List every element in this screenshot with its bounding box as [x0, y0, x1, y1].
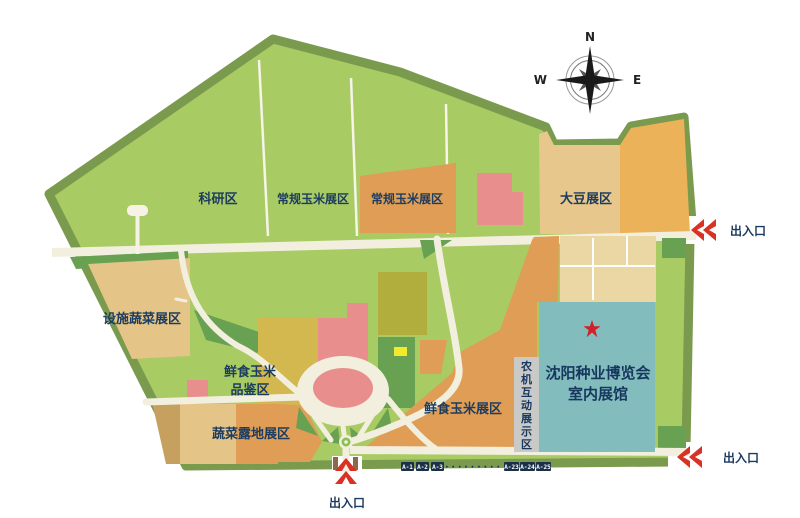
area-soybean-east-plot — [620, 119, 690, 234]
gridded-tan-plots — [560, 236, 656, 302]
indoor-hall-title-line2: 室内展馆 — [568, 385, 628, 403]
svg-text:展: 展 — [520, 412, 533, 425]
entrance-southeast: 出入口 — [677, 446, 759, 468]
agri-machinery-strip: 农 机 互 动 展 示 区 — [514, 357, 539, 452]
label-facility-vegetable: 设施蔬菜展区 — [103, 311, 181, 327]
svg-text:机: 机 — [521, 372, 532, 386]
mini-traffic-circle — [339, 435, 353, 449]
map-canvas: 沈阳种业博览会 室内展馆 农 机 互 动 展 示 区 A-1 A-2 A-3 ·… — [0, 0, 800, 518]
area-soybean-west-plot — [539, 131, 620, 234]
badge-a1: A-1 — [402, 464, 413, 471]
svg-text:示: 示 — [520, 425, 532, 438]
badge-a23: A-23 — [504, 464, 519, 471]
east-green-patch-top — [662, 238, 686, 258]
svg-text:动: 动 — [521, 398, 532, 412]
badge-a25: A-25 — [536, 464, 551, 471]
compass-rose: N W E — [534, 30, 641, 114]
label-regular-corn-east: 常规玉米展区 — [371, 191, 443, 206]
booth-badge-strip: A-1 A-2 A-3 ········· A-23 A-24 A-25 — [401, 462, 551, 473]
label-soybean: 大豆展区 — [560, 191, 612, 207]
svg-text:互: 互 — [521, 386, 532, 399]
roundabout-pink-center — [313, 368, 373, 408]
compass-east-label: E — [633, 73, 641, 87]
chevron-left-icon — [703, 219, 716, 241]
indoor-hall-title-line1: 沈阳种业博览会 — [545, 364, 650, 382]
entrance-southeast-label: 出入口 — [723, 450, 759, 465]
badge-dots: ········· — [445, 463, 503, 473]
indoor-hall: 沈阳种业博览会 室内展馆 — [539, 302, 655, 452]
compass-west-label: W — [534, 73, 547, 87]
label-vegetable-open-field: 蔬菜露地展区 — [212, 426, 290, 442]
label-fresh-corn-tasting-1: 鲜食玉米 — [224, 364, 277, 380]
entrance-east: 出入口 — [691, 219, 766, 241]
svg-text:区: 区 — [521, 438, 532, 451]
svg-text:农: 农 — [520, 359, 532, 373]
badge-a3: A-3 — [432, 464, 443, 471]
entrance-east-label: 出入口 — [730, 223, 766, 238]
expo-park-map: 沈阳种业博览会 室内展馆 农 机 互 动 展 示 区 A-1 A-2 A-3 ·… — [0, 0, 800, 518]
badge-a24: A-24 — [520, 464, 535, 471]
label-research: 科研区 — [198, 191, 237, 207]
label-fresh-corn-exhibition: 鲜食玉米展区 — [424, 401, 502, 417]
label-regular-corn-west: 常规玉米展区 — [277, 191, 349, 206]
badge-a2: A-2 — [417, 464, 428, 471]
label-fresh-corn-tasting-2: 品鉴区 — [230, 382, 269, 398]
central-olive-plot — [378, 272, 427, 335]
open-field-dark-wedge — [152, 402, 184, 464]
east-green-patch-bottom — [658, 426, 686, 450]
entrance-south-label: 出入口 — [329, 495, 365, 510]
highlight-yellow-marker — [394, 347, 407, 356]
compass-north-label: N — [585, 30, 595, 44]
